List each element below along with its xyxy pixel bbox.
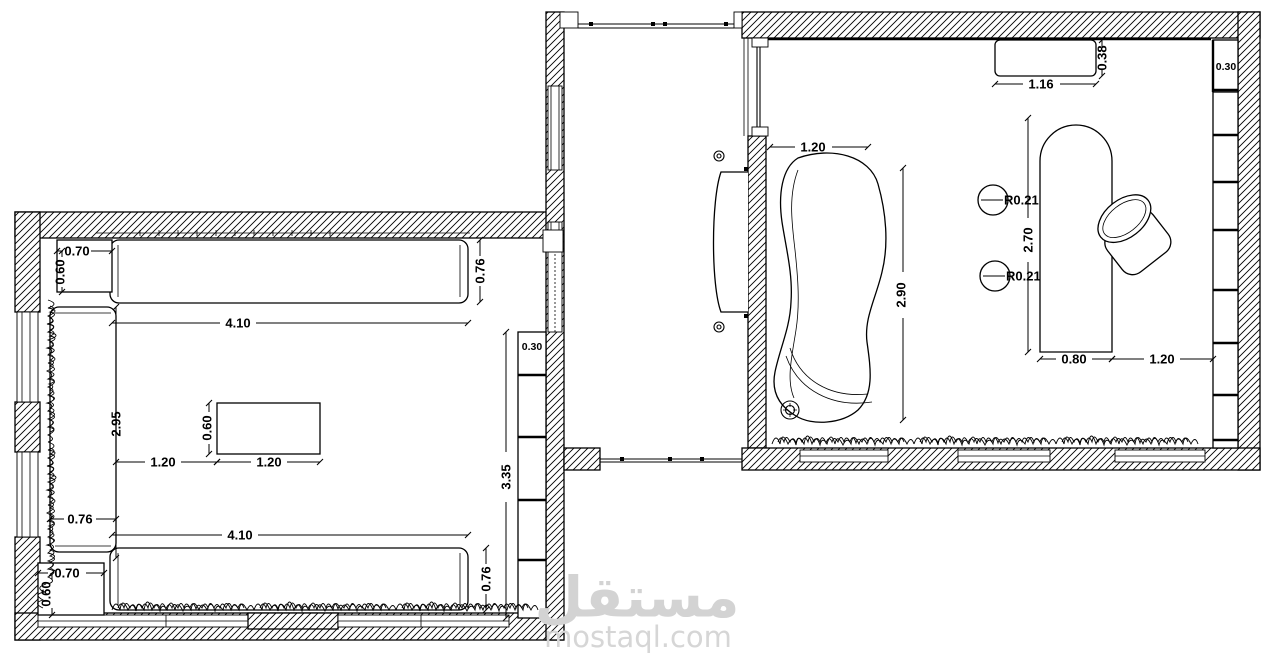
plant-row-right-2 — [914, 436, 1056, 445]
door-pivot-top-icon — [714, 151, 724, 161]
pocket-door-track — [744, 38, 748, 136]
center-table — [217, 403, 320, 454]
dim-bottom-side-table-width: 0.70 — [54, 566, 79, 581]
dim-bottom-sofa-depth: 0.76 — [479, 566, 494, 591]
dim-desk-length: 2.70 — [1021, 227, 1036, 252]
dim-stool-bottom-radius: R0.21 — [1006, 269, 1041, 284]
bottom-sofa — [110, 548, 468, 610]
bottom-glazing-mullion-1 — [620, 457, 624, 461]
pocket-door-jamb-top — [752, 38, 768, 47]
door-stop-top — [744, 167, 748, 171]
bottom-glazing-mullion-2 — [668, 457, 672, 461]
dim-hall-door-opening: 1.20 — [800, 140, 825, 155]
floor-plan-page: 0.70 0.60 0.76 4.10 2.95 0.76 0.60 1.20 … — [0, 0, 1268, 662]
organic-sofa — [774, 153, 886, 422]
glazing-mullion-2 — [651, 22, 655, 26]
pocket-door-leaf — [757, 47, 760, 127]
watermark: مستقل mostaql.com — [535, 566, 740, 655]
dim-console-width: 1.16 — [1028, 77, 1053, 92]
dim-left-sofa-length: 2.95 — [109, 411, 124, 436]
top-sofa — [110, 240, 468, 303]
dim-top-sofa-length: 4.10 — [225, 316, 250, 331]
dim-left-shelf-span: 3.35 — [499, 464, 514, 489]
hall-step-block — [564, 448, 600, 470]
dim-console-depth: 0.38 — [1095, 45, 1110, 70]
glazing-mullion-1 — [589, 22, 593, 26]
dim-desk-width: 0.80 — [1061, 352, 1086, 367]
floor-plan-svg: 0.70 0.60 0.76 4.10 2.95 0.76 0.60 1.20 … — [0, 0, 1268, 662]
dim-organic-sofa-length: 2.90 — [894, 282, 909, 307]
hall-top-right-post — [734, 12, 742, 28]
plant-row-right-3 — [1056, 436, 1198, 445]
door-pivot-top-inner-icon — [717, 154, 721, 158]
dim-left-shelf-depth: 0.30 — [522, 341, 543, 353]
right-room-top-wall — [742, 12, 1260, 38]
dim-bottom-side-table-depth: 0.60 — [39, 581, 54, 606]
dim-desk-clearance: 1.20 — [1149, 352, 1174, 367]
glazing-mullion-3 — [663, 22, 667, 26]
left-room-left-wall-upper — [15, 212, 40, 312]
dim-left-sofa-depth: 0.76 — [67, 512, 92, 527]
bottom-wall-pier — [248, 613, 338, 629]
curved-door-leaf — [714, 172, 749, 312]
pocket-door-jamb-bottom — [752, 127, 768, 136]
dim-top-sofa-depth: 0.76 — [473, 258, 488, 283]
dim-right-shelf-depth: 0.30 — [1216, 61, 1237, 73]
door-pivot-bottom-icon — [714, 322, 724, 332]
glazing-mullion-4 — [724, 22, 728, 26]
hall-top-glazing — [578, 24, 734, 28]
hall-top-left-post — [560, 12, 578, 28]
dim-stool-top-radius: R0.21 — [1004, 193, 1039, 208]
right-room-right-wall — [1238, 12, 1260, 470]
right-room-furniture — [774, 40, 1238, 448]
dim-center-table-depth: 0.60 — [200, 415, 215, 440]
watermark-domain: mostaql.com — [544, 620, 732, 654]
dim-center-table-width: 1.20 — [256, 455, 281, 470]
left-wall-window-1 — [17, 312, 38, 402]
left-room-corner-post — [543, 230, 563, 252]
left-room-top-wall — [15, 212, 563, 238]
plant-row-right-1 — [772, 436, 914, 445]
left-room-left-wall-mid — [15, 402, 40, 452]
dim-center-table-gap: 1.20 — [150, 455, 175, 470]
dim-bottom-sofa-length: 4.10 — [227, 528, 252, 543]
dim-top-side-table-width: 0.70 — [64, 244, 89, 259]
bottom-glazing-mullion-3 — [700, 457, 704, 461]
hall-left-window — [548, 86, 562, 170]
door-pivot-bottom-inner-icon — [717, 325, 721, 329]
door-stop-bottom — [744, 314, 748, 318]
console-cabinet — [995, 40, 1096, 76]
dim-top-side-table-depth: 0.60 — [53, 259, 68, 284]
right-room-left-wall — [748, 136, 766, 448]
left-wall-window-2 — [17, 452, 38, 537]
